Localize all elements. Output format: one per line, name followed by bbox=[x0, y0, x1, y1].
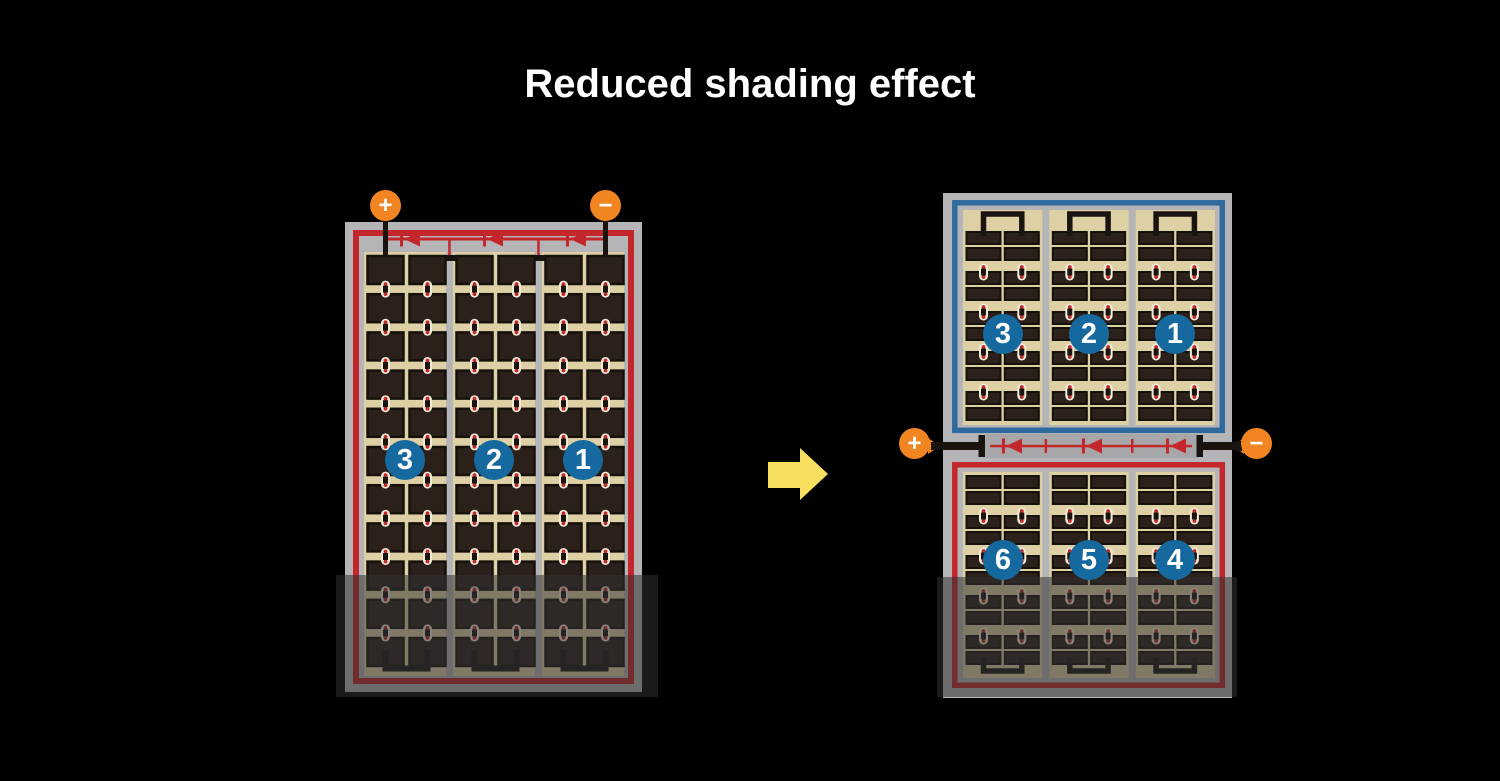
badge-label: 2 bbox=[486, 446, 502, 475]
left-panel-badge-string-2: 2 bbox=[474, 440, 514, 480]
right-panel-top-badge-string-1: 1 bbox=[1155, 314, 1195, 354]
right-panel-top-badge-string-2: 2 bbox=[1069, 314, 1109, 354]
shading-overlay bbox=[937, 577, 1237, 697]
left-panel-minus-terminal: − bbox=[590, 190, 621, 221]
right-panel-minus-terminal: − bbox=[1241, 428, 1272, 459]
badge-label: 3 bbox=[995, 320, 1011, 349]
badge-label: 1 bbox=[575, 446, 591, 475]
shading-overlay bbox=[336, 575, 658, 697]
minus-icon: − bbox=[1249, 432, 1263, 456]
plus-icon: + bbox=[378, 194, 392, 218]
plus-icon: + bbox=[907, 432, 921, 456]
minus-icon: − bbox=[598, 194, 612, 218]
left-panel-badge-string-3: 3 bbox=[385, 440, 425, 480]
right-panel-bottom-badge-string-5: 5 bbox=[1069, 540, 1109, 580]
right-panel-bottom-badge-string-6: 6 bbox=[983, 540, 1023, 580]
left-panel-badge-string-1: 1 bbox=[563, 440, 603, 480]
left-solar-panel: + − 3 2 1 bbox=[325, 180, 675, 710]
badge-label: 2 bbox=[1081, 320, 1097, 349]
right-panel-graphic bbox=[880, 180, 1300, 710]
right-solar-panel: + − 3 2 1 6 5 4 bbox=[880, 180, 1300, 710]
left-panel-plus-terminal: + bbox=[370, 190, 401, 221]
diagram-canvas: Reduced shading effect + − 3 2 1 + − bbox=[0, 0, 1500, 781]
right-panel-top-badge-string-3: 3 bbox=[983, 314, 1023, 354]
badge-label: 5 bbox=[1081, 546, 1097, 575]
right-arrow-icon bbox=[768, 448, 828, 500]
badge-label: 3 bbox=[397, 446, 413, 475]
badge-label: 1 bbox=[1167, 320, 1183, 349]
page-title: Reduced shading effect bbox=[0, 62, 1500, 107]
right-panel-bottom-badge-string-4: 4 bbox=[1155, 540, 1195, 580]
transition-arrow bbox=[762, 442, 837, 506]
right-panel-plus-terminal: + bbox=[899, 428, 930, 459]
badge-label: 4 bbox=[1167, 546, 1183, 575]
badge-label: 6 bbox=[995, 546, 1011, 575]
